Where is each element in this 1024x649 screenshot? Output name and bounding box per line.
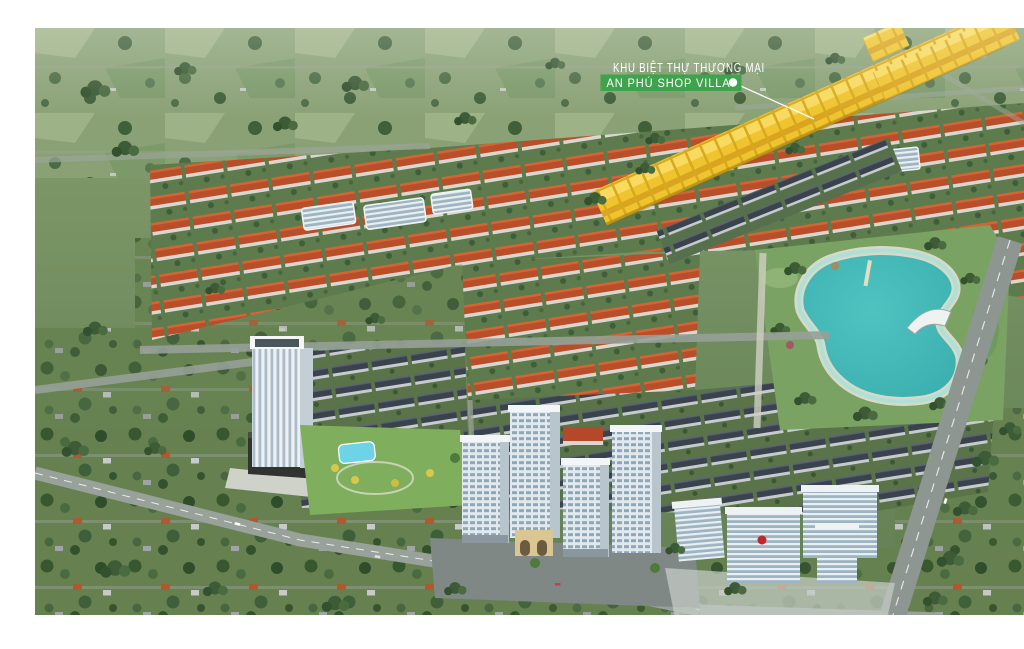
tower-block-left-back <box>508 405 560 538</box>
tower-block-left-front <box>460 435 510 543</box>
campus-logo <box>758 536 767 545</box>
apartment-towers <box>430 405 700 608</box>
swimming-pool <box>338 441 376 464</box>
page: KHU BIỆT THỰ THƯƠNG MẠI AN PHÚ SHOP VILL… <box>0 0 1024 649</box>
annotation-dot <box>729 78 737 86</box>
landscape-park <box>300 425 470 515</box>
tower-block-right-front <box>561 458 610 557</box>
masterplan-aerial-render: KHU BIỆT THỰ THƯƠNG MẠI AN PHÚ SHOP VILL… <box>35 28 1024 615</box>
label-line1: KHU BIỆT THỰ THƯƠNG MẠI <box>613 60 765 75</box>
atmospheric-haze <box>35 28 1024 118</box>
label-line2: AN PHÚ SHOP VILLA <box>607 75 731 90</box>
tower-block-right-back <box>610 425 662 553</box>
gate-arch <box>515 530 553 556</box>
